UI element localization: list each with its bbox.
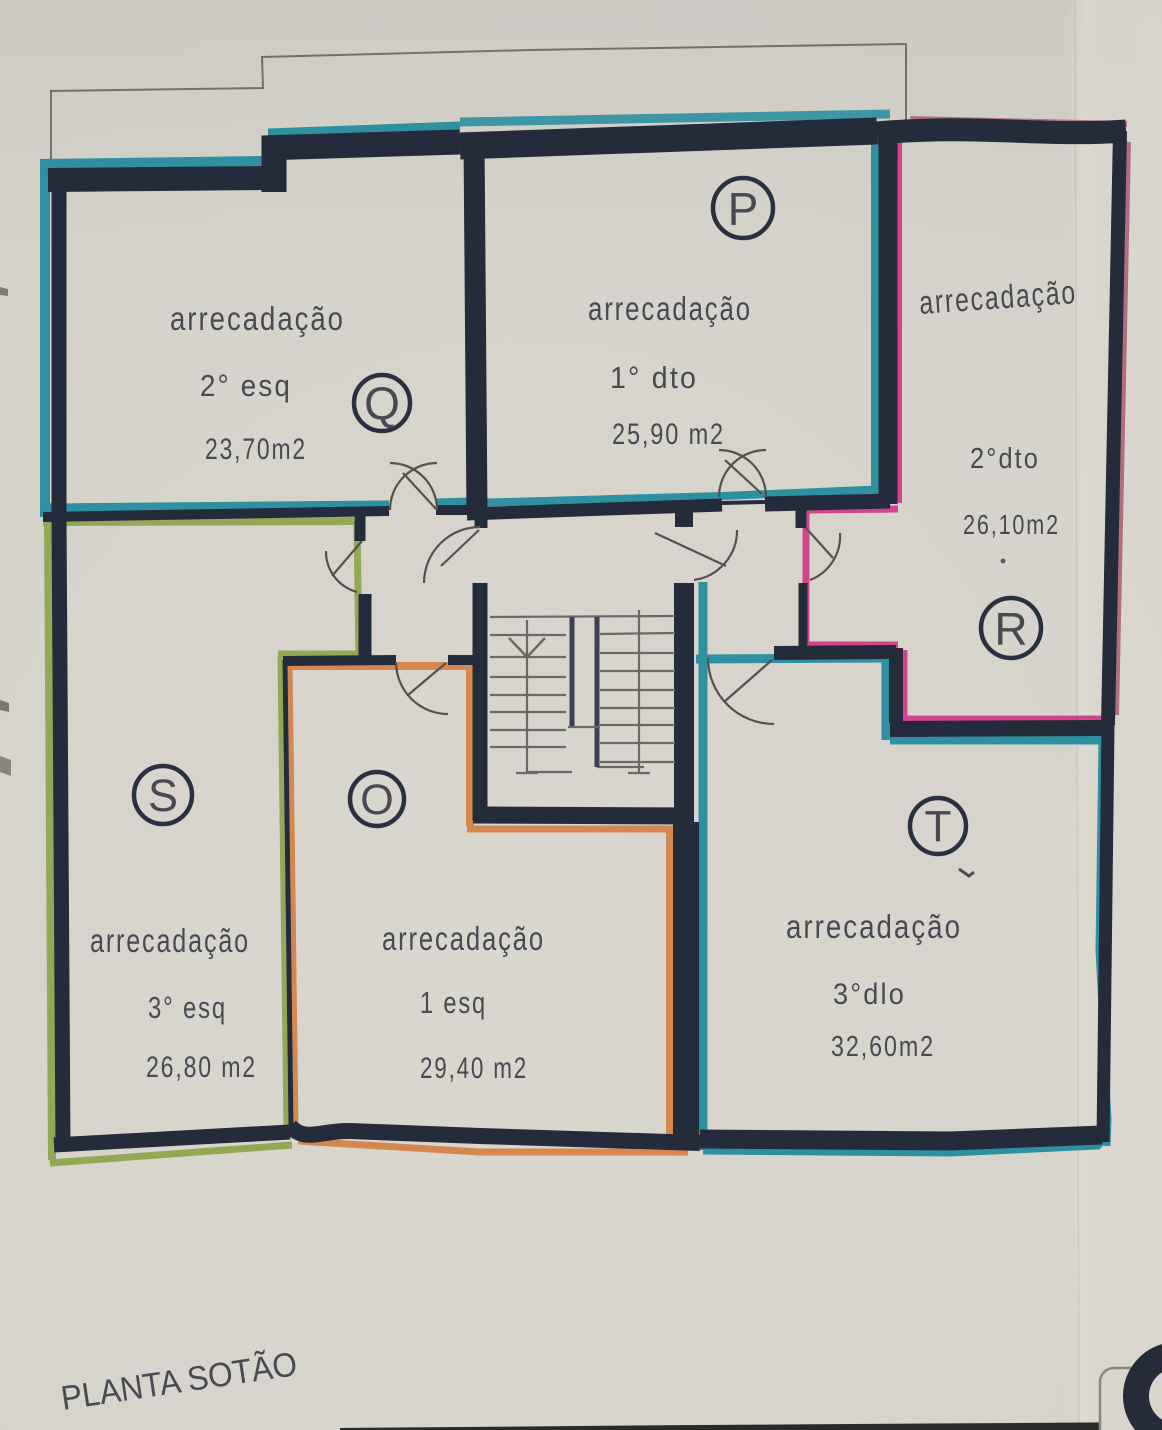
svg-text:T: T: [925, 802, 952, 851]
svg-text:R: R: [994, 603, 1027, 655]
svg-text:P: P: [728, 183, 759, 235]
svg-text:3° esq: 3° esq: [148, 990, 227, 1025]
svg-text:2°dto: 2°dto: [970, 443, 1040, 475]
svg-text:2° esq: 2° esq: [200, 368, 292, 403]
svg-text:arrecadação: arrecadação: [90, 922, 250, 959]
svg-text:arrecadação: arrecadação: [786, 908, 962, 945]
svg-text:Q: Q: [364, 377, 400, 429]
svg-text:arrecadação: arrecadação: [588, 290, 752, 327]
svg-text:25,90 m2: 25,90 m2: [612, 418, 725, 451]
svg-text:23,70m2: 23,70m2: [205, 433, 307, 466]
svg-text:1 esq: 1 esq: [420, 985, 487, 1020]
svg-text:O: O: [360, 776, 393, 824]
svg-text:32,60m2: 32,60m2: [831, 1031, 935, 1063]
svg-text:1° dto: 1° dto: [610, 360, 698, 395]
svg-text:arrecadação: arrecadação: [382, 920, 545, 957]
svg-text:29,40 m2: 29,40 m2: [420, 1052, 528, 1085]
svg-text:26,80 m2: 26,80 m2: [146, 1051, 257, 1084]
svg-text:26,10m2: 26,10m2: [963, 509, 1060, 540]
svg-text:3°dlo: 3°dlo: [833, 978, 906, 1011]
svg-text:S: S: [148, 770, 178, 821]
svg-text:arrecadação: arrecadação: [170, 300, 345, 337]
